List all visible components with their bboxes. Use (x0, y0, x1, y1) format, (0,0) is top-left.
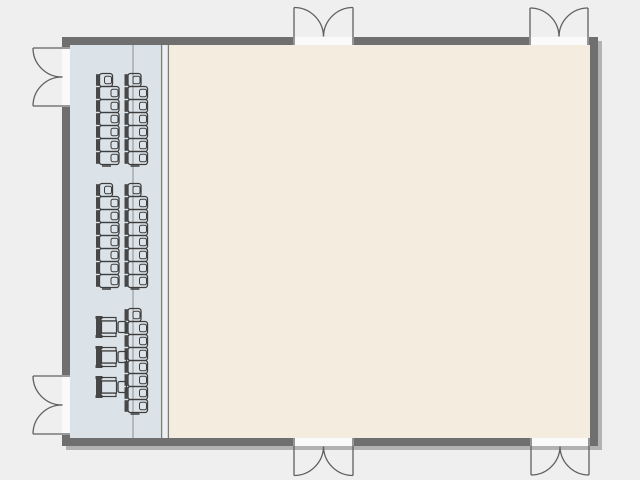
stack-foot-mark (102, 165, 111, 167)
door-opening (530, 438, 590, 446)
door-opening (293, 37, 354, 45)
door-opening (293, 438, 354, 446)
door-opening (62, 47, 70, 107)
door-opening (62, 375, 70, 435)
main-hall-floor (169, 45, 590, 438)
stack-foot-mark (131, 413, 140, 415)
stack-foot-mark (131, 288, 140, 290)
stack-foot-mark (102, 288, 111, 290)
stack-foot-mark (131, 165, 140, 167)
floor-plan-canvas (0, 0, 640, 480)
door-opening (529, 37, 589, 45)
floor-plan (0, 0, 640, 480)
